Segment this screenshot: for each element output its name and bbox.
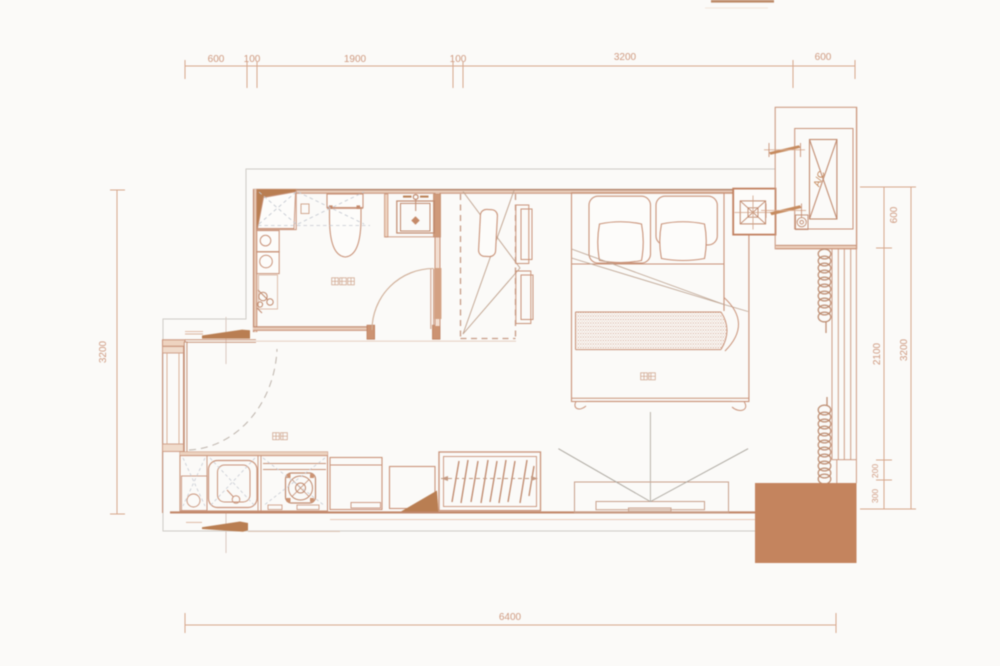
svg-text:300: 300 [870, 489, 880, 503]
svg-text:2100: 2100 [872, 342, 883, 365]
svg-text:100: 100 [244, 54, 261, 65]
svg-text:6400: 6400 [499, 612, 522, 623]
svg-text:3200: 3200 [98, 340, 109, 363]
svg-text:100: 100 [450, 54, 467, 65]
svg-text:600: 600 [815, 52, 832, 63]
svg-text:600: 600 [889, 206, 900, 223]
svg-text:600: 600 [208, 54, 225, 65]
svg-text:1900: 1900 [344, 54, 367, 65]
svg-text:200: 200 [870, 464, 880, 478]
svg-text:3200: 3200 [614, 52, 637, 63]
svg-text:3200: 3200 [899, 338, 910, 361]
